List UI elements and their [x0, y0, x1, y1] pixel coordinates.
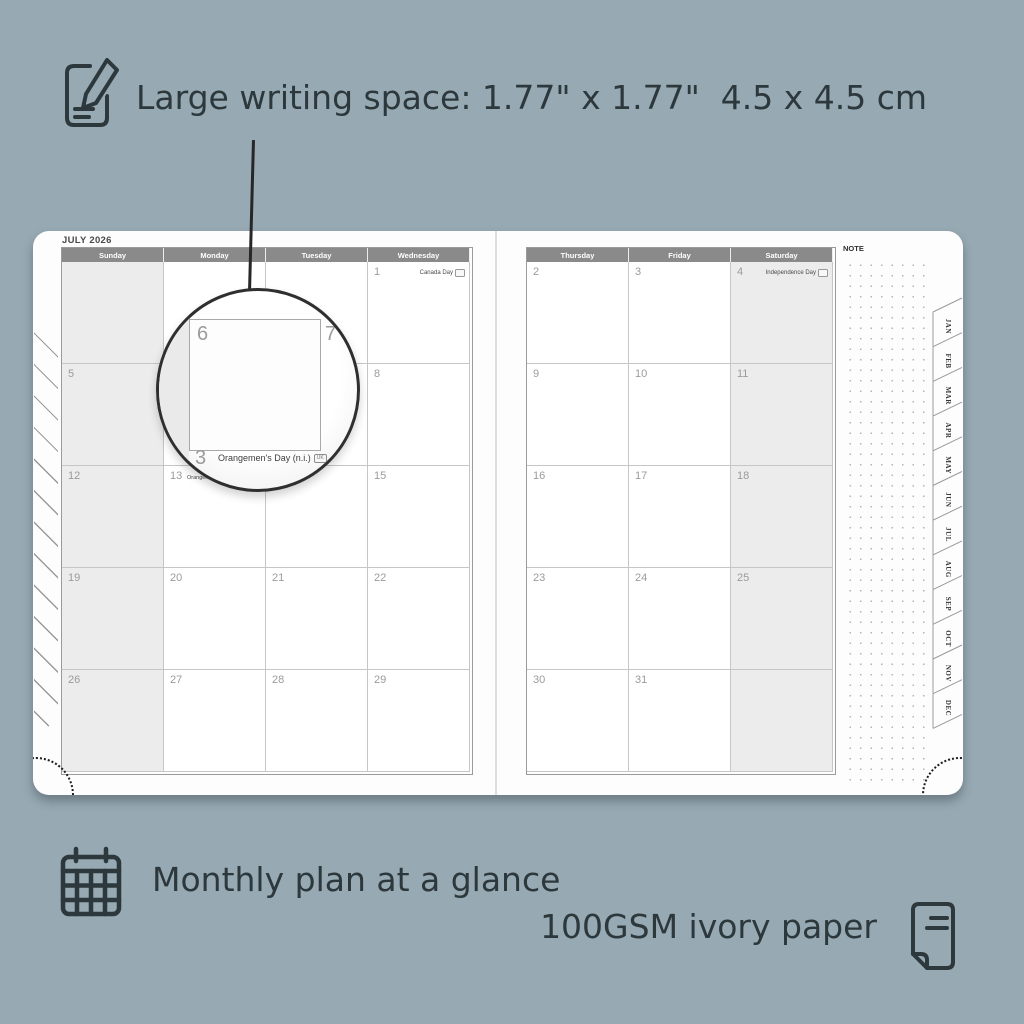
us-flag-badge — [818, 269, 828, 277]
month-title: JULY 2026 — [62, 235, 112, 246]
date-number: 16 — [533, 470, 545, 482]
date-number: 22 — [374, 572, 386, 584]
calendar-cell: 9 — [527, 364, 629, 466]
magnified-writing-cell — [189, 319, 321, 451]
date-number: 10 — [635, 368, 647, 380]
month-tab-label: SEP — [944, 597, 952, 612]
corner-stitch-right — [922, 757, 963, 795]
month-tab-label: JAN — [944, 319, 952, 334]
calendar-cell: 28 — [266, 670, 368, 772]
calendar-cell: 21 — [266, 568, 368, 670]
calendar-cell: 24 — [629, 568, 731, 670]
date-number: 29 — [374, 674, 386, 686]
calendar-cell: 20 — [164, 568, 266, 670]
day-header: Thursday — [527, 248, 629, 262]
tab-cut-line — [933, 333, 962, 347]
day-header: Wednesday — [368, 248, 470, 262]
date-number: 24 — [635, 572, 647, 584]
holiday-label: Canada Day — [420, 269, 465, 277]
day-header: Friday — [629, 248, 731, 262]
date-number: 31 — [635, 674, 647, 686]
ca-flag-badge — [455, 269, 465, 277]
tab-cut-line — [933, 437, 962, 451]
calendar-grid-icon — [59, 846, 123, 918]
calendar-cell: 18 — [731, 466, 833, 568]
date-number: 8 — [374, 368, 380, 380]
product-image: { "features": { "writing_space": "Large … — [0, 0, 1024, 1024]
date-number: 3 — [635, 266, 641, 278]
tab-cut-line — [933, 714, 962, 728]
date-number: 23 — [533, 572, 545, 584]
calendar-cell: 26 — [62, 670, 164, 772]
calendar-cell: 11 — [731, 364, 833, 466]
date-number: 21 — [272, 572, 284, 584]
calendar-cell: 19 — [62, 568, 164, 670]
page-edge-hatch — [34, 314, 58, 742]
calendar-cell: 31 — [629, 670, 731, 772]
date-number: 27 — [170, 674, 182, 686]
date-number: 26 — [68, 674, 80, 686]
calendar-cell: 12 — [62, 466, 164, 568]
month-tabs: JANFEBMARAPRMAYJUNJULAUGSEPOCTNOVDEC — [926, 293, 963, 753]
holiday-label: Independence Day — [766, 269, 828, 277]
date-number: 25 — [737, 572, 749, 584]
calendar-cell: 1Canada Day — [368, 262, 470, 364]
calendar-cell: 16 — [527, 466, 629, 568]
note-label: NOTE — [843, 244, 864, 253]
magnified-date: 6 — [197, 323, 208, 346]
feature-paper-quality: 100GSM ivory paper — [540, 905, 877, 949]
month-tab-label: AUG — [944, 561, 952, 578]
magnified-next-date: 7 — [325, 323, 336, 346]
magnified-sunday-shade — [159, 291, 189, 489]
magnified-holiday-text: Orangemen's Day (n.i.) — [218, 453, 311, 463]
center-fold — [495, 231, 497, 795]
calendar-cell: 25 — [731, 568, 833, 670]
tab-cut-line — [933, 541, 962, 555]
tab-cut-line — [933, 610, 962, 624]
magnified-holiday: Orangemen's Day (n.i.) UK — [218, 453, 327, 463]
tab-cut-line — [933, 367, 962, 381]
date-number: 20 — [170, 572, 182, 584]
calendar-cell: 27 — [164, 670, 266, 772]
calendar-cell: 8 — [368, 364, 470, 466]
month-tab-label: MAY — [944, 456, 952, 474]
paper-sheet-icon — [905, 898, 961, 974]
calendar-cell — [62, 262, 164, 364]
feature-monthly-plan: Monthly plan at a glance — [152, 858, 560, 902]
date-number: 4 — [737, 266, 743, 278]
calendar-cell: 2 — [527, 262, 629, 364]
date-number: 11 — [737, 368, 748, 380]
month-tab-label: DEC — [944, 700, 952, 716]
tab-cut-line — [933, 506, 962, 520]
month-tab-label: NOV — [944, 665, 952, 682]
date-number: 30 — [533, 674, 545, 686]
calendar-cell: 4Independence Day — [731, 262, 833, 364]
magnifier-circle: 6 7 3 Orangemen's Day (n.i.) UK — [156, 288, 360, 492]
date-number: 15 — [374, 470, 386, 482]
calendar-cell: 30 — [527, 670, 629, 772]
date-number: 17 — [635, 470, 647, 482]
date-number: 9 — [533, 368, 539, 380]
note-dot-grid — [845, 260, 928, 788]
date-number: 5 — [68, 368, 74, 380]
date-number: 28 — [272, 674, 284, 686]
calendar-cell: 15 — [368, 466, 470, 568]
month-tab-label: APR — [944, 423, 952, 439]
tab-cut-line — [933, 645, 962, 659]
magnified-partial-date: 3 — [195, 447, 206, 470]
holiday-text: Canada Day — [420, 270, 453, 276]
magnified-view: 6 7 3 Orangemen's Day (n.i.) UK — [159, 291, 357, 489]
uk-flag-badge: UK — [314, 454, 327, 463]
month-tab-label: OCT — [944, 630, 952, 647]
day-header: Tuesday — [266, 248, 368, 262]
feature-writing-space: Large writing space: 1.77" x 1.77" 4.5 x… — [136, 76, 927, 120]
tab-cut-line — [933, 298, 962, 312]
calendar-cell: 5 — [62, 364, 164, 466]
date-number: 12 — [68, 470, 80, 482]
calendar-cell: 17 — [629, 466, 731, 568]
month-tab-label: MAR — [944, 387, 952, 406]
calendar-cell: 29 — [368, 670, 470, 772]
date-number: 18 — [737, 470, 749, 482]
holiday-text: Independence Day — [766, 270, 816, 276]
calendar-cell — [731, 670, 833, 772]
day-header: Saturday — [731, 248, 833, 262]
month-tab-label: JUL — [944, 527, 952, 542]
calendar-cell: 23 — [527, 568, 629, 670]
month-tab-label: FEB — [944, 353, 952, 368]
calendar-cell: 3 — [629, 262, 731, 364]
date-number: 2 — [533, 266, 539, 278]
date-number: 1 — [374, 266, 380, 278]
calendar-cell: 22 — [368, 568, 470, 670]
date-number: 19 — [68, 572, 80, 584]
calendar-cell: 10 — [629, 364, 731, 466]
pencil-note-icon — [60, 54, 124, 132]
day-header: Sunday — [62, 248, 164, 262]
month-tab-label: JUN — [944, 492, 952, 507]
